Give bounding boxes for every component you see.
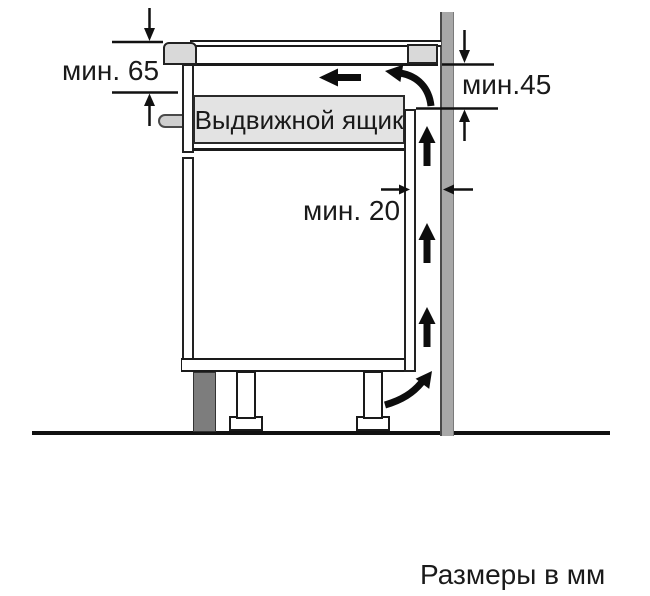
cabinet-bottom-shelf: [181, 358, 416, 372]
min-65-label: мин. 65: [62, 56, 159, 85]
cabinet-side-panel: [182, 157, 194, 371]
min-45-label: мин.45: [462, 70, 551, 99]
hob-right-trim: [407, 44, 438, 64]
drawer-label: Выдвижной ящик: [195, 107, 404, 133]
drawer-box: Выдвижной ящик: [193, 95, 405, 144]
dimension-20: [381, 185, 473, 195]
airflow-up-arrow-3-head: [419, 307, 436, 324]
plinth-panel: [193, 372, 216, 432]
arrows-layer: [0, 0, 650, 596]
units-note: Размеры в мм: [420, 560, 605, 589]
dim-45-arrow-up-head: [459, 110, 470, 123]
dim-65-arrow-down-head: [144, 28, 155, 41]
airflow-bottom-curve: [385, 382, 422, 405]
right-leg: [363, 371, 383, 419]
airflow-up-arrow-1-head: [419, 126, 436, 143]
wall: [440, 12, 454, 436]
cabinet-back-panel: [404, 109, 416, 372]
min-20-label: мин. 20: [303, 196, 400, 225]
installation-diagram: Выдвижной ящик: [0, 0, 650, 596]
floor-line: [32, 431, 610, 435]
hob-worktop-surface: [190, 40, 441, 47]
hob-underside-line: [191, 63, 438, 66]
airflow-left-arrow-head: [319, 69, 338, 87]
hob-left-trim: [163, 42, 197, 65]
airflow-bottom-curve-head: [416, 371, 432, 389]
airflow-top-curve-head: [385, 65, 403, 82]
dim-45-arrow-down-head: [459, 50, 470, 63]
dim-65-arrow-up-head: [144, 94, 155, 107]
drawer-support-line: [193, 148, 404, 151]
left-leg: [236, 371, 256, 419]
airflow-up-arrow-2-head: [419, 223, 436, 240]
